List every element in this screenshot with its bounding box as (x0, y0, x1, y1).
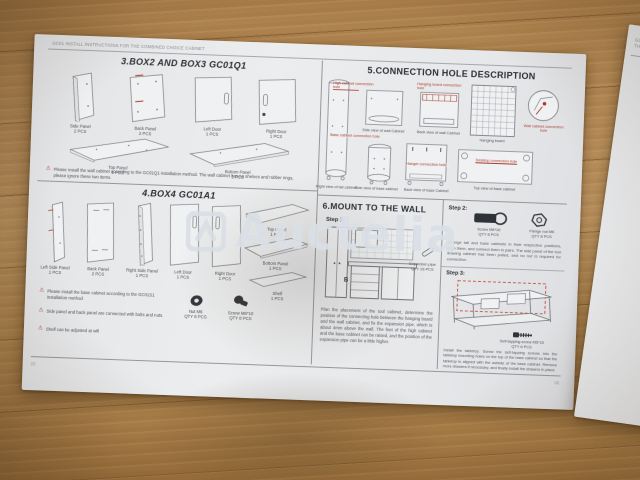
label-back-base-text: Back view of base Cabinet (404, 188, 449, 194)
hardware-screw-m610: Screw M6*10QTY 8 PCS (218, 293, 263, 322)
svg-text:B: B (344, 278, 349, 284)
section4-note-2-text: Side panel and back panel are connected … (46, 309, 163, 319)
label-back-wall: Back view of wall Cabinet (411, 130, 465, 136)
label-side-base: Side view of base cabinet (351, 186, 401, 192)
part-back-panel-s4: Back Panel2 PCS (78, 200, 121, 278)
screw-icon (232, 293, 250, 309)
warning-icon: ⚠ (46, 167, 51, 173)
section3-title: 3.BOX2 AND BOX3 GC01Q1 (94, 55, 274, 72)
flange-nut-label: Flange nut M6 QTY 8 PCS (522, 229, 562, 240)
label-tall-cabinet: Right view of tall cabinet (315, 184, 357, 190)
wall-cabinet-back-view (418, 90, 461, 130)
warning-icon: ⚠ (38, 308, 43, 314)
base-cabinet-top-view (456, 148, 535, 187)
part-right-door-s3: Right Door1 PCS (247, 76, 307, 141)
part-right-side-panel-s4: Right Side Panel1 PCS (122, 201, 165, 279)
label-side-base-text: Side view of base cabinet (355, 186, 398, 192)
side-panel-drawing (64, 71, 100, 122)
bolt-icon (472, 211, 508, 225)
label-side-wall-text: Side view of wall Cabinet (362, 128, 404, 134)
tall-cabinet-right-view (323, 78, 351, 183)
right-door-drawing (254, 76, 300, 128)
page-number-right: 06 (554, 380, 559, 385)
label-top-base-text: Top view of base cabinet (473, 186, 515, 192)
bottom-panel-drawing (186, 140, 291, 170)
top-panel-drawing (66, 135, 171, 165)
part-left-door-s3: Left Door1 PCS (183, 74, 243, 139)
hardware-qty: QTY 8 PCS (184, 314, 207, 320)
part-qty: 2 PCS (134, 131, 156, 137)
hardware-qty: QTY 8 PCS (466, 232, 512, 239)
section4-note-3-text: Shelf can be adjusted at will (46, 327, 99, 335)
left-door-drawing (191, 74, 237, 126)
section4-note-3: ⚠ Shelf can be adjusted at will (38, 326, 168, 336)
part-qty: 1 PCS (174, 275, 192, 281)
back-panel-drawing (81, 200, 117, 265)
annotation-hanging-board: Hanging board connection hole (417, 82, 465, 92)
back-panel-drawing (124, 71, 168, 125)
part-qty: 2 PCS (87, 271, 109, 277)
connection-hole-inset (526, 88, 561, 123)
watermark-text: Auctelia (234, 204, 459, 264)
label-hanging-board: Hanging board (471, 138, 513, 144)
base-cabinet-side-view (365, 142, 393, 185)
part-qty: 1 PCS (266, 134, 287, 140)
label-back-base: Back view of base Cabinet (401, 188, 451, 194)
nut-icon (188, 294, 203, 308)
warning-icon: ⚠ (39, 288, 44, 294)
part-qty: 2 PCS (70, 129, 91, 135)
flange-nut-icon (530, 212, 549, 228)
hardware-qty: QTY 8 PCS (228, 316, 254, 322)
label-hanging-board-text: Hanging board (480, 138, 505, 143)
shelf-drawing (248, 270, 309, 290)
step2-paragraph: Arrange tall and base cabinets in their … (447, 239, 562, 266)
section4-note-1-text: Please install the base cabinet accordin… (47, 289, 169, 305)
part-left-side-panel-s4: Left Side Panel1 PCS (36, 200, 77, 276)
wall-cabinet-side-view (364, 88, 405, 127)
part-side-panel-s3: Side Panel2 PCS (51, 71, 111, 136)
label-back-wall-text: Back view of wall Cabinet (417, 130, 460, 136)
section4-note-1: ⚠ Please install the base cabinet accord… (39, 288, 169, 304)
right-side-panel-drawing (130, 202, 156, 267)
part-qty: 1 PCS (40, 270, 69, 276)
second-sheet-rule (631, 55, 640, 69)
hardware-nut-m6: Nut M6QTY 8 PCS (176, 293, 215, 320)
step3-label: Step 3: (446, 270, 465, 277)
part-qty: 1 PCS (203, 132, 221, 138)
warning-icon: ⚠ (38, 326, 43, 332)
part-qty: 1 PCS (271, 296, 284, 302)
left-side-panel-drawing (44, 201, 68, 264)
label-tall-cabinet-text: Right view of tall cabinet (316, 184, 357, 189)
step3-paragraph: Install the tabletop. Screw the self-tap… (443, 347, 558, 373)
workbench-drawing (444, 278, 560, 336)
watermark: Auctelia (185, 203, 459, 264)
part-qty: 1 PCS (126, 273, 158, 280)
part-back-panel-s3: Back Panel2 PCS (115, 71, 177, 138)
section4-note-2: ⚠ Side panel and back panel are connecte… (38, 308, 168, 318)
section4-title: 4.BOX4 GC01A1 (109, 187, 249, 202)
step1-paragraph: Plan the placement of the tool cabinet, … (320, 307, 433, 347)
auctelia-logo-icon (186, 211, 227, 252)
hanging-board-drawing (469, 84, 517, 138)
label-top-base: Top view of base cabinet (463, 186, 525, 193)
photo-scene: GC01 INSTALL INSTRUCTIONS FOR THE COMBIN… (0, 0, 640, 480)
page-number-left: 22 (31, 361, 36, 366)
hardware-qty: QTY 8 PCS (522, 234, 562, 240)
annotation-wall-cabinet: Wall cabinet connection hole (519, 124, 567, 134)
part-qty: 1 PCS (214, 276, 235, 282)
bolt-label: Screw M6*16 QTY 8 PCS (466, 227, 512, 238)
